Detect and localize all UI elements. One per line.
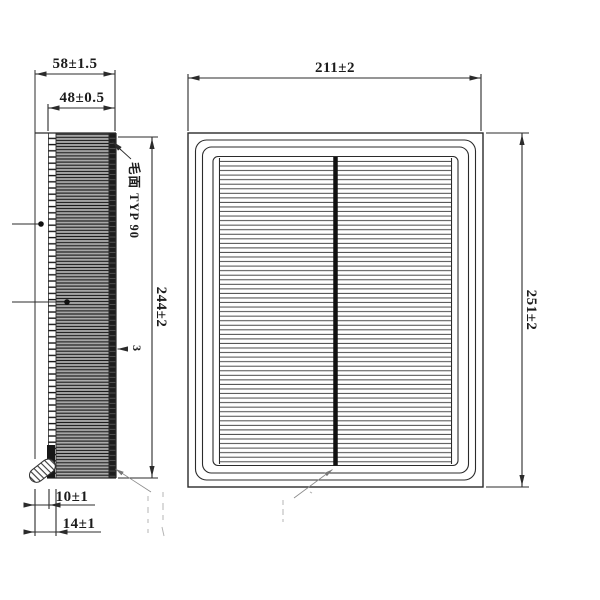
dim-front-width-text: 211±2 (315, 60, 355, 76)
dim-front-width: 211±2 (188, 60, 481, 131)
dim-seal-lip-text: 10±1 (56, 489, 89, 505)
dim-depth-pleats-text: 48±0.5 (60, 90, 105, 106)
dim-front-height-text: 251±2 (523, 290, 539, 331)
side-pleat-pack (56, 133, 109, 478)
side-outer-face (109, 133, 116, 478)
surface-note-text: 毛面 TYP 90 (127, 162, 142, 239)
dim-front-height: 251±2 (486, 133, 539, 487)
dim-depth-total-text: 58±1.5 (53, 56, 98, 72)
dim-seal-base-text: 14±1 (63, 516, 96, 532)
dim-side-height-text: 244±2 (153, 287, 169, 328)
side-view: 58±1.5 48±0.5 244±2 毛面 TYP 90 3 (12, 56, 169, 536)
front-center-leader (294, 470, 333, 499)
datum-dot-upper (38, 221, 44, 227)
front-view: 211±2 251±2 (188, 60, 539, 522)
illegible-annotation-side (148, 492, 164, 536)
pleat-pitch-label: 3 (118, 345, 145, 351)
illegible-annotation-front (283, 492, 312, 522)
side-pleat-tips (48, 133, 56, 478)
surface-note: 毛面 TYP 90 (113, 142, 143, 240)
engineering-drawing-sheet: 58±1.5 48±0.5 244±2 毛面 TYP 90 3 (0, 0, 600, 600)
dim-depth-pleats: 48±0.5 (48, 90, 115, 108)
pleat-pitch-text: 3 (130, 345, 144, 351)
datum-dot-lower (64, 299, 70, 305)
air-filter-drawing: 58±1.5 48±0.5 244±2 毛面 TYP 90 3 (0, 0, 600, 600)
side-bottom-leader (116, 469, 152, 492)
dim-side-height: 244±2 (118, 137, 169, 478)
side-seal-gasket (27, 456, 58, 485)
